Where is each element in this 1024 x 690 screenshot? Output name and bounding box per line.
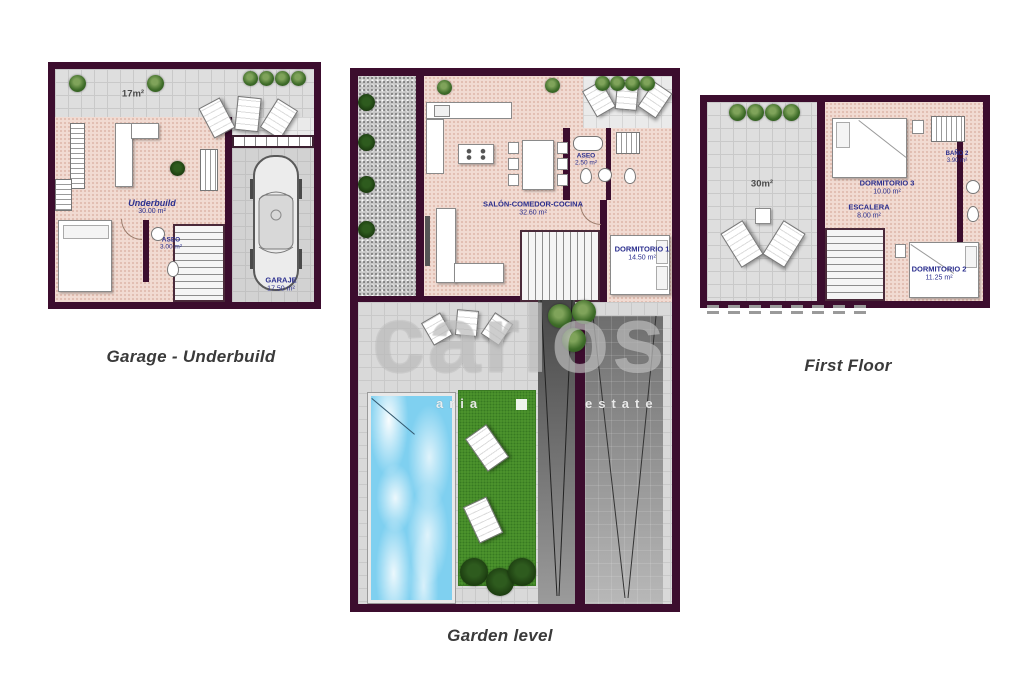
lounger bbox=[234, 96, 261, 132]
room-label-salon: SALÓN-COMEDOR-COCINA 32.60 m² bbox=[483, 201, 583, 218]
room-label-dormitorio3: DORMITORIO 3 10.00 m² bbox=[860, 180, 915, 197]
room-label-bano2: BAÑO 2 3.90 m² bbox=[946, 151, 969, 165]
plan-garden-level: ASEO 2.50 m² DORMITORIO 1 14.50 m² SALÓN… bbox=[350, 68, 680, 612]
kitchen-counter bbox=[426, 119, 444, 174]
staircase bbox=[825, 228, 885, 301]
toilet-icon bbox=[167, 261, 179, 277]
chair bbox=[557, 174, 568, 186]
car-icon bbox=[250, 153, 302, 293]
wardrobe bbox=[55, 179, 72, 211]
bed-pillow bbox=[836, 122, 850, 148]
tree-icon bbox=[765, 104, 782, 121]
nightstand bbox=[912, 120, 924, 134]
bed-pillow bbox=[656, 266, 668, 290]
cabinet bbox=[200, 149, 218, 191]
plan-garage-underbuild: 17m² bbox=[48, 62, 321, 309]
tree-icon bbox=[69, 75, 86, 92]
tree-icon bbox=[147, 75, 164, 92]
sink-icon bbox=[966, 180, 980, 194]
wall bbox=[143, 220, 149, 282]
swimming-pool bbox=[368, 393, 455, 603]
plan-title-first-floor: First Floor bbox=[804, 356, 891, 376]
room-label-aseo-garden: ASEO 2.50 m² bbox=[575, 153, 597, 168]
dashed-line bbox=[707, 311, 875, 314]
plant-icon bbox=[358, 176, 375, 193]
tree-icon bbox=[437, 80, 452, 95]
driveway-ramp bbox=[585, 316, 663, 604]
plan-title-garage: Garage - Underbuild bbox=[106, 347, 275, 367]
toilet-icon bbox=[580, 168, 592, 184]
chair bbox=[508, 142, 519, 154]
chair bbox=[557, 158, 568, 170]
tree-icon bbox=[545, 78, 560, 93]
room-label-aseo-garage: ASEO 3.00 m² bbox=[160, 237, 182, 252]
tree-icon bbox=[610, 76, 625, 91]
tv-icon bbox=[425, 216, 430, 266]
plant-icon bbox=[460, 558, 488, 586]
bush-icon bbox=[548, 304, 572, 328]
plan-title-garden: Garden level bbox=[447, 626, 553, 646]
wall bbox=[817, 102, 825, 301]
side-table bbox=[755, 208, 771, 224]
plant-icon bbox=[358, 94, 375, 111]
shower-icon bbox=[616, 132, 640, 154]
sink-icon bbox=[598, 168, 612, 182]
tree-icon bbox=[595, 76, 610, 91]
wall bbox=[600, 200, 607, 302]
toilet-icon bbox=[624, 168, 636, 184]
bed-pillow bbox=[965, 246, 977, 268]
toilet-icon bbox=[967, 206, 979, 222]
patio-chair bbox=[455, 309, 479, 337]
shelf-unit bbox=[70, 123, 85, 189]
closet bbox=[931, 116, 965, 142]
room-label-garaje: GARAJE 17.50 m² bbox=[265, 277, 296, 294]
staircase bbox=[520, 230, 600, 302]
sofa bbox=[436, 208, 456, 283]
first-terrace-area-label: 30m² bbox=[751, 179, 773, 190]
sofa bbox=[131, 123, 159, 139]
room-label-underbuild: Underbuild 30.00 m² bbox=[128, 198, 176, 216]
plan-first-floor: 30m² DORMITORIO 3 10.00 m² BAÑO 2 3.90 m… bbox=[700, 95, 990, 308]
stove-icon bbox=[462, 147, 490, 161]
plant-icon bbox=[358, 221, 375, 238]
plant-icon bbox=[508, 558, 536, 586]
room-label-dormitorio2: DORMITORIO 2 11.25 m² bbox=[912, 266, 967, 283]
tree-icon bbox=[243, 71, 258, 86]
tree-icon bbox=[275, 71, 290, 86]
wall bbox=[225, 117, 232, 302]
kitchen-sink-icon bbox=[434, 105, 450, 117]
tree-icon bbox=[625, 76, 640, 91]
wall bbox=[416, 76, 424, 302]
floorplan-canvas: 17m² bbox=[0, 0, 1024, 690]
bed-pillow bbox=[63, 225, 109, 239]
dining-table bbox=[522, 140, 554, 190]
lawn bbox=[458, 390, 536, 586]
tree-icon bbox=[747, 104, 764, 121]
tree-icon bbox=[259, 71, 274, 86]
first-floor-terrace bbox=[707, 102, 817, 301]
plant-icon bbox=[170, 161, 185, 176]
tree-icon bbox=[729, 104, 746, 121]
nightstand bbox=[895, 244, 906, 258]
tree-icon bbox=[640, 76, 655, 91]
chair bbox=[557, 142, 568, 154]
tree-icon bbox=[291, 71, 306, 86]
bush-icon bbox=[562, 328, 586, 352]
garage-door bbox=[232, 135, 314, 148]
dining-set bbox=[508, 138, 570, 194]
garage-terrace-area-label: 17m² bbox=[122, 89, 144, 100]
bathtub-icon bbox=[573, 136, 603, 151]
chair bbox=[508, 158, 519, 170]
dashed-line bbox=[707, 305, 875, 308]
plant-icon bbox=[358, 134, 375, 151]
wall bbox=[606, 128, 611, 200]
tree-icon bbox=[783, 104, 800, 121]
sofa bbox=[454, 263, 504, 283]
bush-icon bbox=[572, 300, 596, 324]
chair bbox=[508, 174, 519, 186]
room-label-escalera: ESCALERA 8.00 m² bbox=[848, 204, 889, 221]
room-label-dormitorio1: DORMITORIO 1 14.50 m² bbox=[615, 246, 670, 263]
